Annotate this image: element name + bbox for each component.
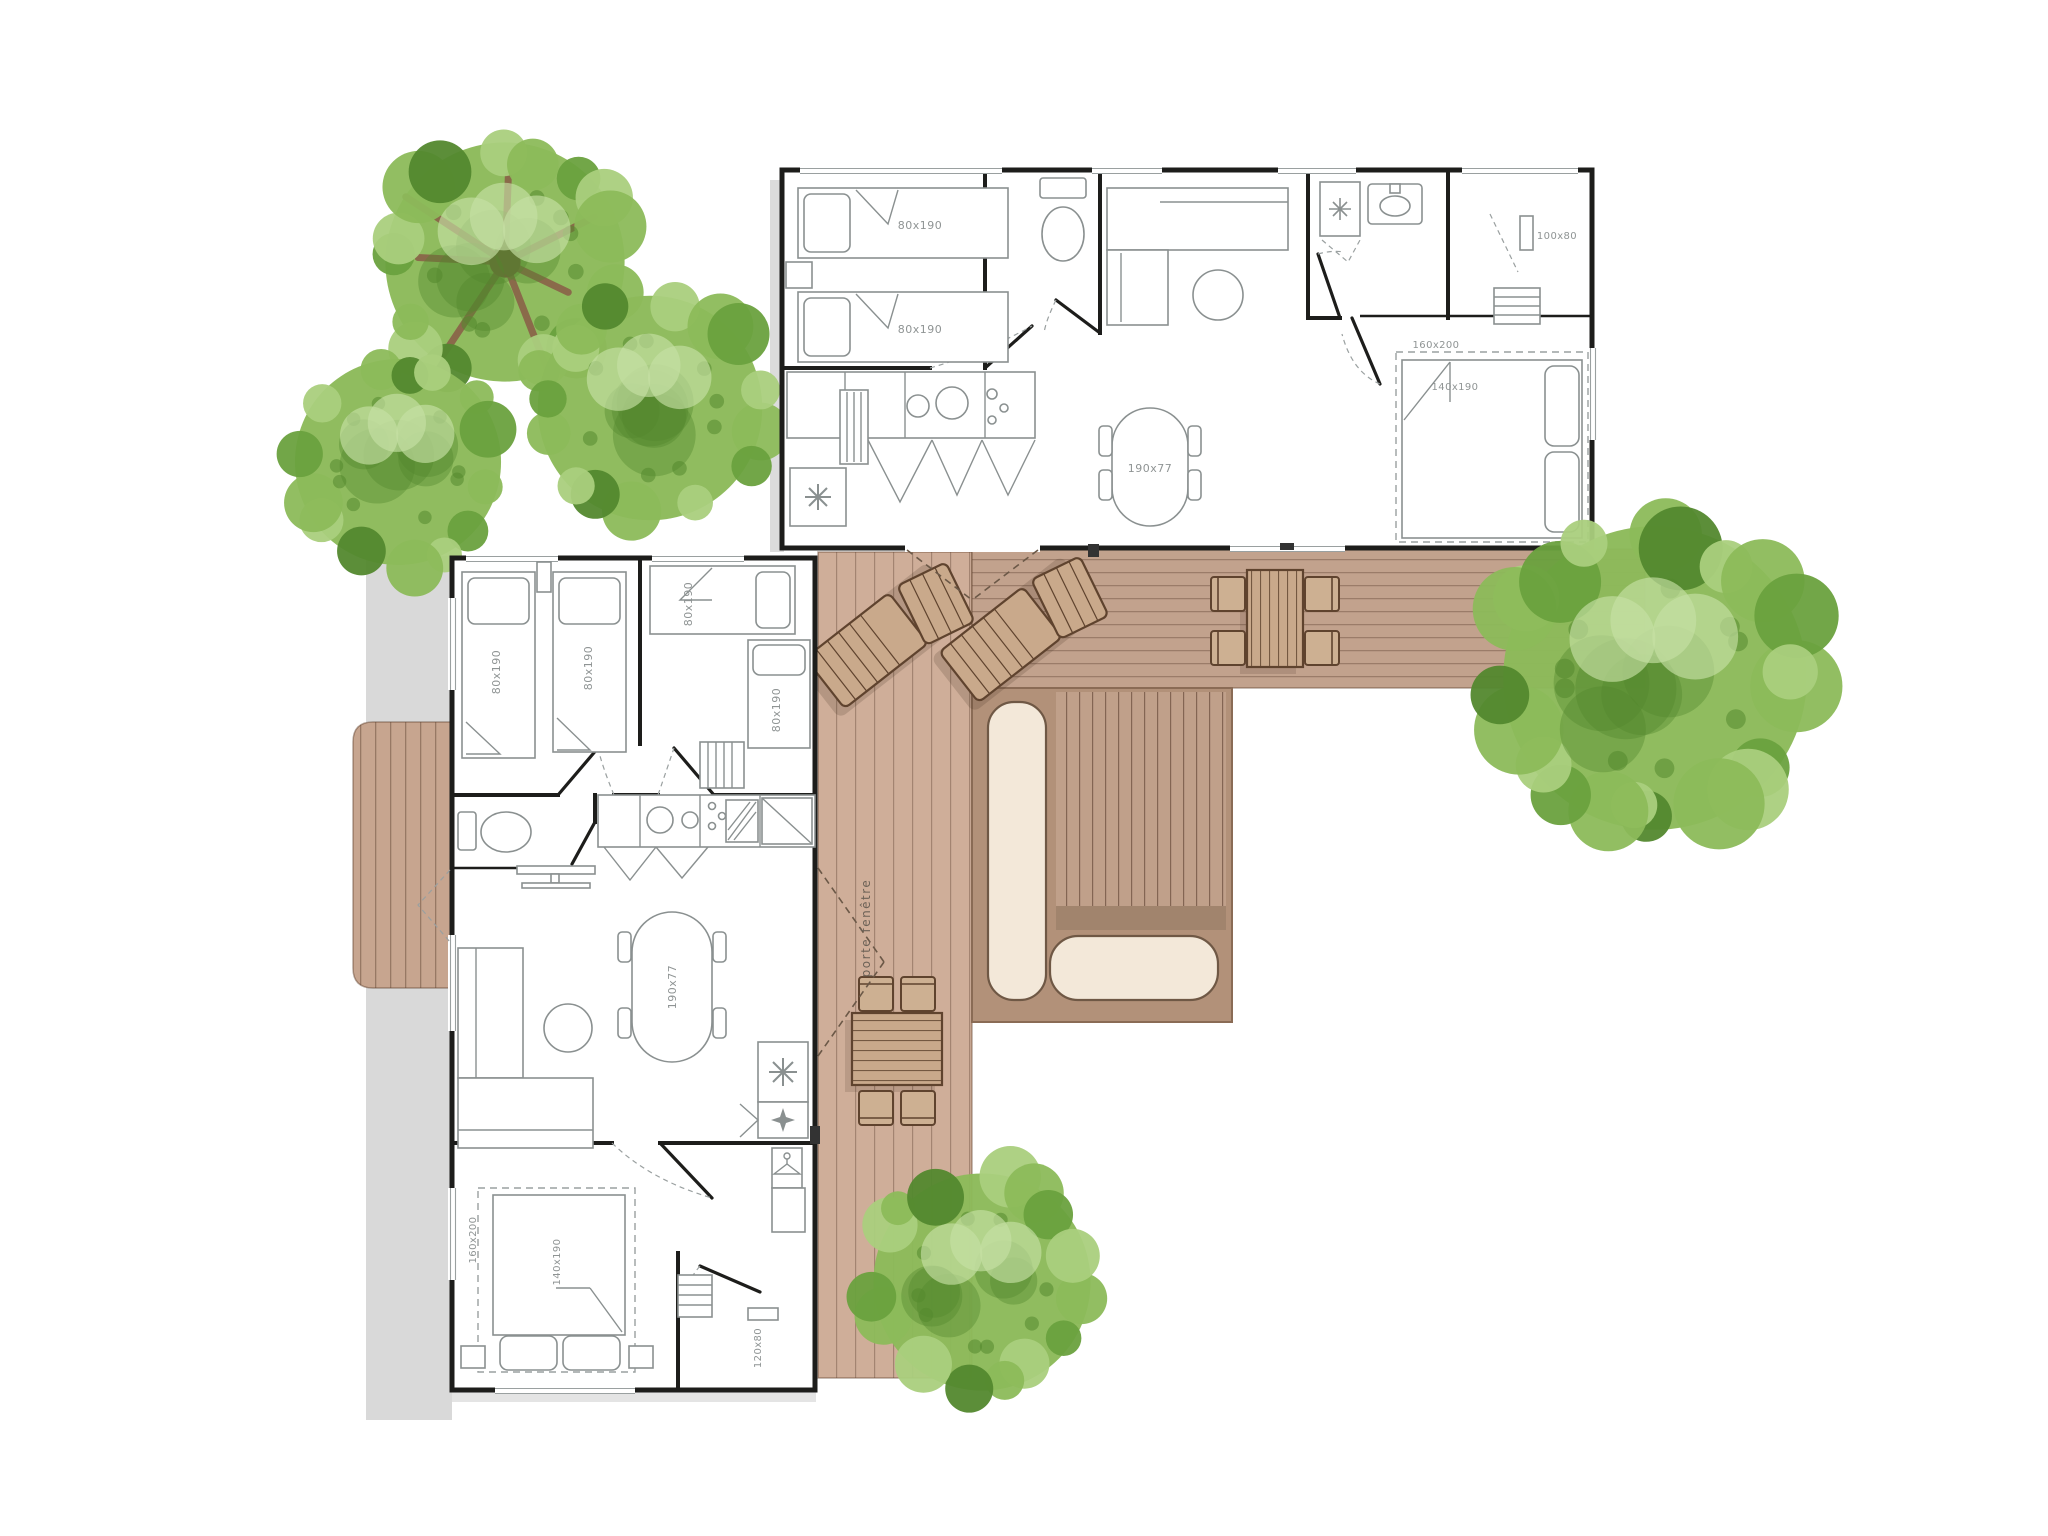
hob-burner <box>709 803 716 810</box>
round-side-table <box>1193 270 1243 320</box>
bed-size-label: 140x190 <box>552 1239 563 1286</box>
kitchen-sink <box>647 807 673 833</box>
sliding-window <box>1230 543 1345 552</box>
chair <box>618 1008 631 1038</box>
wardrobe <box>1520 216 1533 250</box>
chair <box>618 932 631 962</box>
toilet-tank <box>458 812 476 850</box>
room-size-label: 160x200 <box>468 1217 479 1264</box>
chair <box>1188 470 1201 500</box>
pillow <box>468 578 529 624</box>
faucet <box>1390 184 1400 193</box>
platform-band <box>1056 906 1226 930</box>
pouf <box>544 1004 592 1052</box>
hob-burner <box>719 813 726 820</box>
door-handle <box>1088 544 1099 557</box>
toilet <box>1042 207 1084 261</box>
floor-plan-page: 80x190 80x190 190x77 <box>0 0 2048 1536</box>
left-unit: 80x190 80x190 80x190 80x190 <box>448 554 820 1394</box>
shelf <box>772 1188 805 1232</box>
sofa <box>458 948 523 1078</box>
nightstand <box>537 562 551 592</box>
chair <box>1188 426 1201 456</box>
bed-size-label: 80x190 <box>770 688 783 733</box>
tv-stand <box>551 874 559 883</box>
shelf-unit <box>700 742 744 788</box>
toilet-tank <box>1040 178 1086 198</box>
pillow <box>500 1336 557 1370</box>
bed-size-label: 80x190 <box>898 323 943 336</box>
lounge-cushion-vertical <box>988 702 1046 1000</box>
bench <box>748 1308 778 1320</box>
pillow <box>1545 366 1579 446</box>
chair <box>713 1008 726 1038</box>
shelf-unit <box>678 1275 712 1317</box>
nightstand <box>786 262 812 288</box>
nightstand <box>461 1346 485 1368</box>
pillow <box>559 578 620 624</box>
snowflake-icon <box>769 1058 797 1086</box>
bed-size-label: 80x190 <box>490 650 503 695</box>
pillow <box>804 194 850 252</box>
hob-burner <box>709 823 716 830</box>
hob-burner <box>987 389 997 399</box>
deck-terrace-left <box>353 722 452 988</box>
pillow <box>804 298 850 356</box>
table-size-label: 190x77 <box>666 965 679 1010</box>
pillow <box>753 645 805 675</box>
tv-screen <box>517 866 595 874</box>
hob-burner <box>988 416 996 424</box>
bed-size-label: 140x190 <box>1432 382 1479 393</box>
pillow <box>756 572 790 628</box>
lounge-cushion-horizontal <box>1050 936 1218 1000</box>
table-size-label: 190x77 <box>1128 462 1173 475</box>
hob-burner <box>1000 404 1008 412</box>
kitchen-sink <box>907 395 929 417</box>
chair <box>1099 470 1112 500</box>
room-size-label: 160x200 <box>1413 340 1460 351</box>
sofa <box>1107 188 1288 250</box>
nightstand <box>629 1346 653 1368</box>
chair <box>1099 426 1112 456</box>
door-handle <box>810 1126 820 1144</box>
outdoor-dining-set-lower <box>845 977 942 1125</box>
sofa-chaise <box>1107 250 1168 325</box>
top-unit: 80x190 80x190 190x77 <box>782 166 1596 600</box>
shower-size-label: 120x80 <box>753 1328 764 1368</box>
kitchen-sink <box>936 387 968 419</box>
sofa <box>458 1078 593 1148</box>
floor-plan-canvas: 80x190 80x190 190x77 <box>0 0 2048 1536</box>
bed-size-label: 80x190 <box>582 646 595 691</box>
pillow <box>563 1336 620 1370</box>
pillow <box>1545 452 1579 532</box>
kitchen-sink <box>682 812 698 828</box>
top-unit-master-bedroom: 160x200 140x190 <box>1396 340 1588 542</box>
chair <box>713 932 726 962</box>
french-door-label: porte fenêtre <box>859 879 873 978</box>
toilet <box>481 812 531 852</box>
top-unit-wc <box>1040 178 1086 261</box>
wardrobe-size-label: 100x80 <box>1537 231 1577 242</box>
bed-size-label: 80x190 <box>898 219 943 232</box>
wardrobe <box>772 1148 802 1188</box>
tv-base <box>522 883 590 888</box>
bed-size-label: 80x190 <box>682 582 695 627</box>
deck-lounge-platform <box>972 688 1232 1022</box>
